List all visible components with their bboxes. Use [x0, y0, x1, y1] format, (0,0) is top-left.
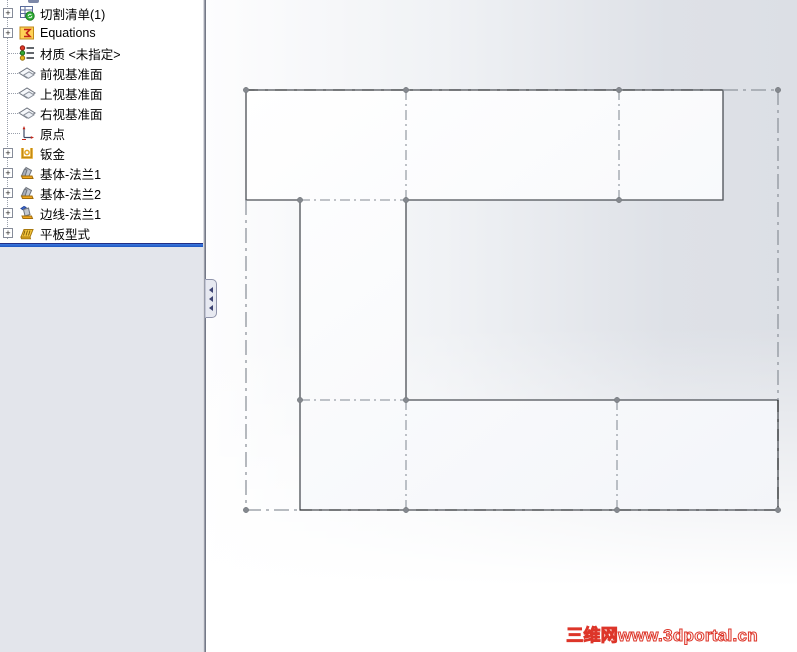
tree-item-label: Equations	[36, 26, 96, 40]
vertex-point[interactable]	[616, 87, 621, 92]
tree-item[interactable]: 上视基准面	[0, 83, 203, 103]
expander-plus-icon[interactable]: +	[3, 228, 13, 238]
vertex-point[interactable]	[614, 507, 619, 512]
expander-plus-icon[interactable]: +	[3, 8, 13, 18]
flat-pattern-drawing	[206, 0, 797, 652]
flat-pattern-face[interactable]	[246, 90, 778, 510]
vertex-point[interactable]	[243, 507, 248, 512]
solidworks-window: + 切割清单(1) + Equations 材质 <未指定> 前视基准面	[0, 0, 797, 652]
vertex-point[interactable]	[297, 197, 302, 202]
tree-item[interactable]: + 切割清单(1)	[0, 3, 203, 23]
tree-gutter	[0, 123, 17, 143]
expander-plus-icon[interactable]: +	[3, 28, 13, 38]
tree-item[interactable]: + 基体-法兰2	[0, 183, 203, 203]
tree-connector-stub	[8, 113, 20, 114]
tree-item-label: 右视基准面	[36, 104, 103, 123]
tree-item[interactable]: 前视基准面	[0, 63, 203, 83]
tree-gutter	[0, 63, 17, 83]
tree-item[interactable]: 右视基准面	[0, 103, 203, 123]
vertex-point[interactable]	[403, 87, 408, 92]
vertex-point[interactable]	[403, 397, 408, 402]
tree-item-label: 平板型式	[36, 224, 90, 243]
tree-connector-stub	[8, 53, 20, 54]
edge-flange-icon	[17, 205, 36, 221]
expander-plus-icon[interactable]: +	[3, 168, 13, 178]
panel-splitter[interactable]	[203, 0, 206, 652]
vertex-point[interactable]	[297, 397, 302, 402]
tree-connector-stub	[8, 73, 20, 74]
sheet-metal-icon	[17, 145, 36, 161]
watermark: 三维网www.3dportal.cn	[566, 621, 758, 646]
vertex-point[interactable]	[775, 507, 780, 512]
vertex-point[interactable]	[403, 197, 408, 202]
tree-gutter: +	[0, 23, 17, 43]
base-flange-icon	[17, 185, 36, 201]
tree-connector-stub	[8, 133, 20, 134]
tree-item[interactable]: + 边线-法兰1	[0, 203, 203, 223]
tree-item-label: 边线-法兰1	[36, 204, 101, 223]
expander-plus-icon[interactable]: +	[3, 208, 13, 218]
tree-gutter: +	[0, 203, 17, 223]
panel-lower-area	[0, 247, 203, 652]
vertex-point[interactable]	[403, 507, 408, 512]
vertex-point[interactable]	[243, 87, 248, 92]
tree-item-label: 基体-法兰2	[36, 184, 101, 203]
tree-item-label: 材质 <未指定>	[36, 44, 121, 63]
graphics-viewport[interactable]: 三维网www.3dportal.cn	[206, 0, 797, 652]
collapse-arrow-icon	[209, 305, 213, 311]
vertex-point[interactable]	[775, 87, 780, 92]
feature-manager-panel: + 切割清单(1) + Equations 材质 <未指定> 前视基准面	[0, 0, 203, 652]
tree-gutter: +	[0, 183, 17, 203]
vertex-point[interactable]	[616, 197, 621, 202]
tree-item-label: 前视基准面	[36, 64, 103, 83]
tree-item-label: 基体-法兰1	[36, 164, 101, 183]
tree-gutter: +	[0, 223, 17, 243]
tree-gutter	[0, 43, 17, 63]
tree-gutter: +	[0, 3, 17, 23]
tree-gutter	[0, 83, 17, 103]
flat-pattern-icon	[17, 225, 36, 241]
tree-gutter	[0, 103, 17, 123]
tree-item-label: 切割清单(1)	[36, 4, 105, 23]
collapse-arrow-icon	[209, 287, 213, 293]
tree-item[interactable]: + Equations	[0, 23, 203, 43]
tree-item[interactable]: + 平板型式	[0, 223, 203, 243]
tree-gutter: +	[0, 163, 17, 183]
tree-item[interactable]: 原点	[0, 123, 203, 143]
equations-icon	[17, 25, 36, 41]
tree-item-label: 钣金	[36, 144, 65, 163]
collapse-arrow-icon	[209, 296, 213, 302]
tree-item[interactable]: 材质 <未指定>	[0, 43, 203, 63]
tree-connector-stub	[8, 93, 20, 94]
base-flange-icon	[17, 165, 36, 181]
expander-plus-icon[interactable]: +	[3, 148, 13, 158]
tree-item[interactable]: + 钣金	[0, 143, 203, 163]
cut-list-icon	[17, 5, 36, 21]
feature-tree: + 切割清单(1) + Equations 材质 <未指定> 前视基准面	[0, 0, 203, 243]
expander-plus-icon[interactable]: +	[3, 188, 13, 198]
tree-item-label: 原点	[36, 124, 65, 143]
tree-item[interactable]: + 基体-法兰1	[0, 163, 203, 183]
tree-gutter: +	[0, 143, 17, 163]
tree-item-label: 上视基准面	[36, 84, 103, 103]
vertex-point[interactable]	[614, 397, 619, 402]
panel-collapse-tab[interactable]	[205, 279, 217, 318]
